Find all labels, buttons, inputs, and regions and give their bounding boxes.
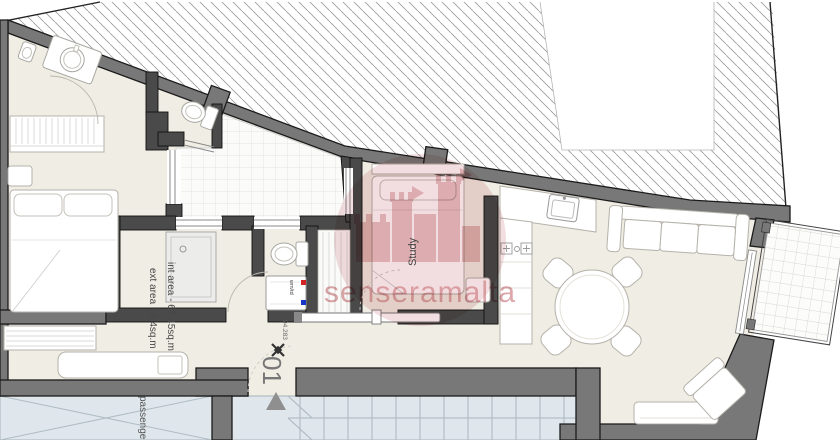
hot-water-point — [301, 280, 306, 285]
hall-shelf — [4, 326, 96, 350]
ext-area-label: ext area - 9.4sq.m — [147, 268, 158, 349]
study-label: Study — [407, 237, 419, 266]
floor-plan-canvas: senseramalta Study int area - 67.45sq.m … — [0, 0, 840, 440]
unit-number-label: 01 — [257, 356, 287, 385]
washer-dryer — [266, 276, 306, 310]
kitchen-sink — [546, 194, 579, 222]
cold-water-point — [301, 300, 306, 305]
wm-td-label: wm/td — [288, 279, 294, 295]
watermark-text: senseramalta — [324, 276, 516, 309]
double-bed — [10, 190, 118, 312]
passenger-lift-shaft — [0, 396, 212, 440]
level-marker-label: 94.283 — [281, 320, 288, 340]
common-stairs — [232, 396, 576, 440]
hall-console — [58, 352, 188, 378]
bedside-table — [8, 166, 32, 186]
lift-label: passenger lift — [137, 396, 148, 440]
level-marker-star — [272, 344, 284, 356]
int-area-label: int area - 67.45sq.m — [165, 262, 176, 351]
toilet — [271, 242, 308, 266]
floor-plan: senseramalta Study int area - 67.45sq.m … — [0, 0, 840, 440]
wardrobe — [10, 116, 104, 152]
